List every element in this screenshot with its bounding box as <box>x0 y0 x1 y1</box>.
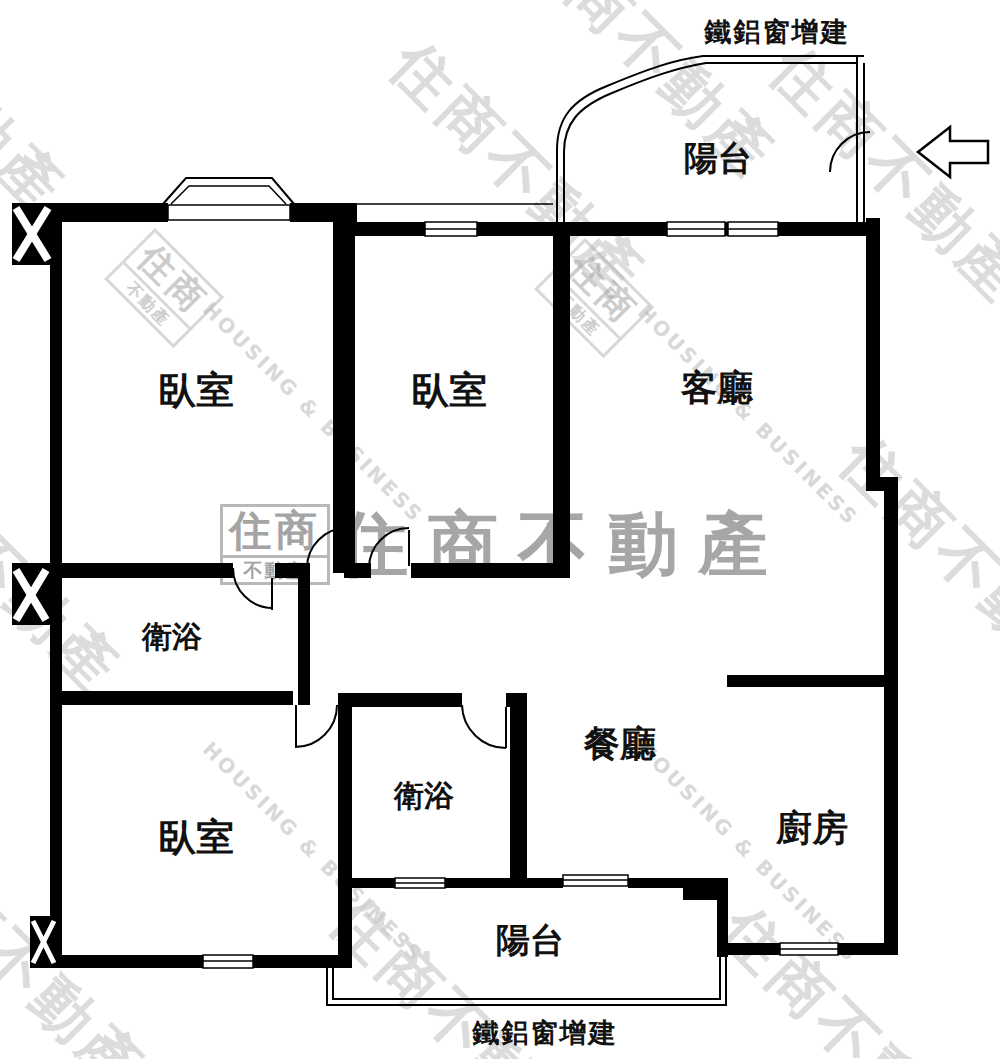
window-bedroom3-bottom <box>203 955 253 968</box>
window-living-top-2 <box>728 222 778 236</box>
window-bedroom2-top <box>425 222 477 236</box>
door-bathroom1 <box>233 568 273 610</box>
balcony-bottom-outline <box>327 955 726 1005</box>
window-kitchen-bottom <box>780 943 838 955</box>
entrance-arrow-icon <box>918 127 988 177</box>
shaft-marker-bottom-left <box>30 916 57 968</box>
window-bathroom2-bottom <box>395 878 445 888</box>
shaft-marker-middle-left <box>12 565 50 625</box>
bay-window-bedroom1 <box>163 178 294 220</box>
door-bedroom2 <box>369 528 409 568</box>
balcony-top-outline <box>355 56 864 222</box>
door-bathroom2 <box>462 705 506 748</box>
floor-plan-drawing <box>0 0 1000 1059</box>
window-living-top-1 <box>667 222 725 236</box>
floor-plan: 住商不動產 住商不動產 住商不動產 住商不動產 住商不動產 住商不動產 住商不動… <box>0 0 1000 1059</box>
walls <box>12 203 898 968</box>
window-dining-balcony <box>563 875 628 886</box>
door-bedroom3 <box>295 705 337 747</box>
shaft-marker-top-left <box>12 203 52 265</box>
